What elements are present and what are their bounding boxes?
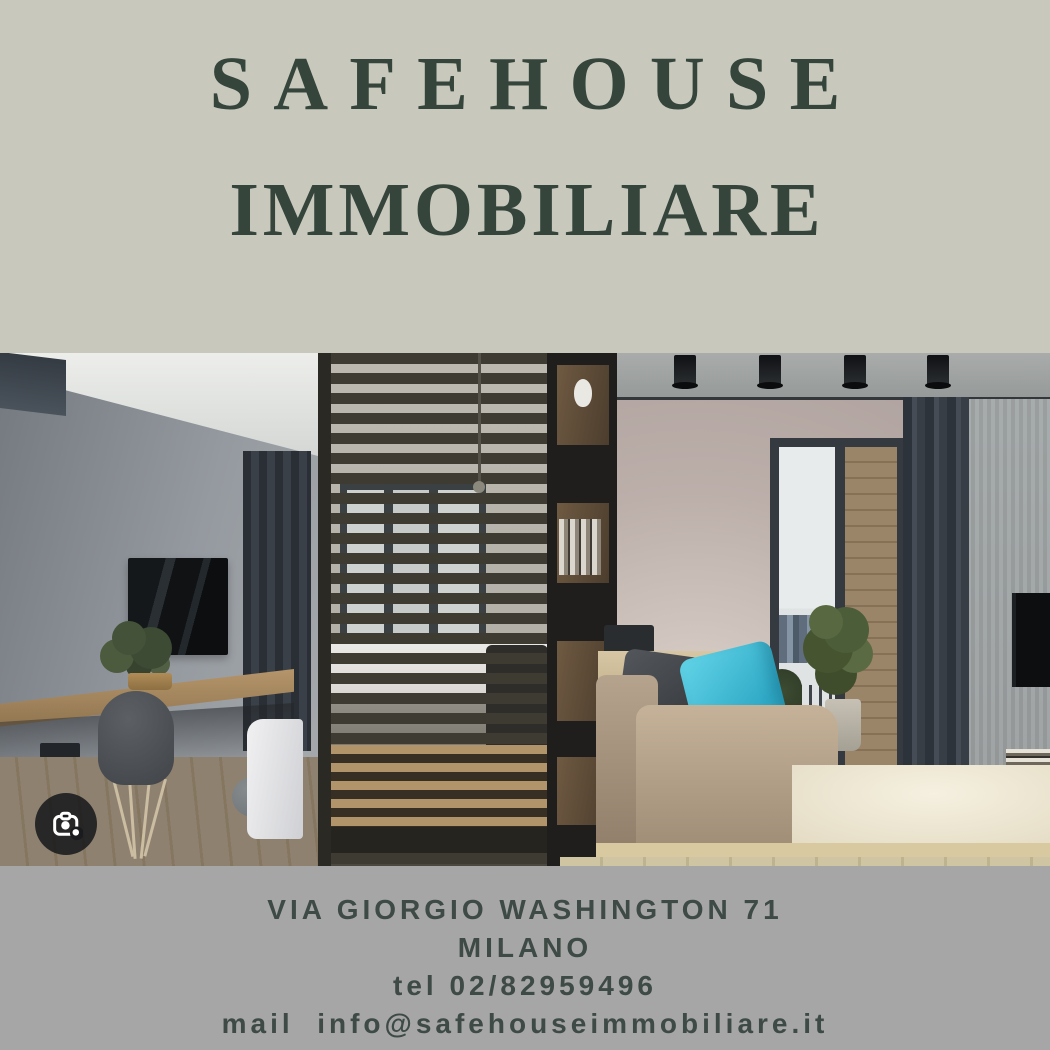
wall-socket xyxy=(40,743,80,758)
lit-wood-slats xyxy=(318,745,560,831)
air-conditioner xyxy=(0,353,66,416)
phone-line: tel 02/82959496 xyxy=(0,967,1050,1005)
ceiling-spotlight xyxy=(674,355,696,385)
pendant-rod xyxy=(478,353,481,485)
white-bed-corner xyxy=(247,719,303,839)
right-tv xyxy=(1012,593,1050,687)
header: SAFEHOUSE IMMOBILIARE xyxy=(0,0,1050,353)
google-lens-camera-icon xyxy=(49,807,83,841)
divider-post-left xyxy=(318,353,331,866)
ceiling-spotlight xyxy=(759,355,781,385)
desk-chair xyxy=(98,691,174,785)
wood-floor-right xyxy=(560,857,1050,866)
brand-title-line1: SAFEHOUSE xyxy=(188,46,861,122)
contact-footer: VIA GIORGIO WASHINGTON 71 MILANO tel 02/… xyxy=(0,866,1050,1050)
address-line: VIA GIORGIO WASHINGTON 71 xyxy=(0,891,1050,929)
ceiling-spotlight xyxy=(927,355,949,385)
bright-platform-floor xyxy=(792,765,1050,847)
ceiling-spotlight xyxy=(844,355,866,385)
city-line: MILANO xyxy=(0,929,1050,967)
white-vase xyxy=(574,379,592,407)
divider-bottom-rail xyxy=(318,827,560,853)
google-lens-button[interactable] xyxy=(35,793,97,855)
desk-plant-pot xyxy=(128,673,172,690)
email-line: mail info@safehouseimmobiliare.it xyxy=(0,1005,1050,1043)
shelf-books xyxy=(559,519,601,575)
apartment-photo[interactable] xyxy=(0,353,1050,866)
desk-plant xyxy=(112,621,146,655)
brand-title-line2: IMMOBILIARE xyxy=(226,172,825,248)
pendant-lamp xyxy=(473,481,485,493)
balcony-plant xyxy=(809,605,843,639)
real-estate-ad: SAFEHOUSE IMMOBILIARE xyxy=(0,0,1050,1050)
